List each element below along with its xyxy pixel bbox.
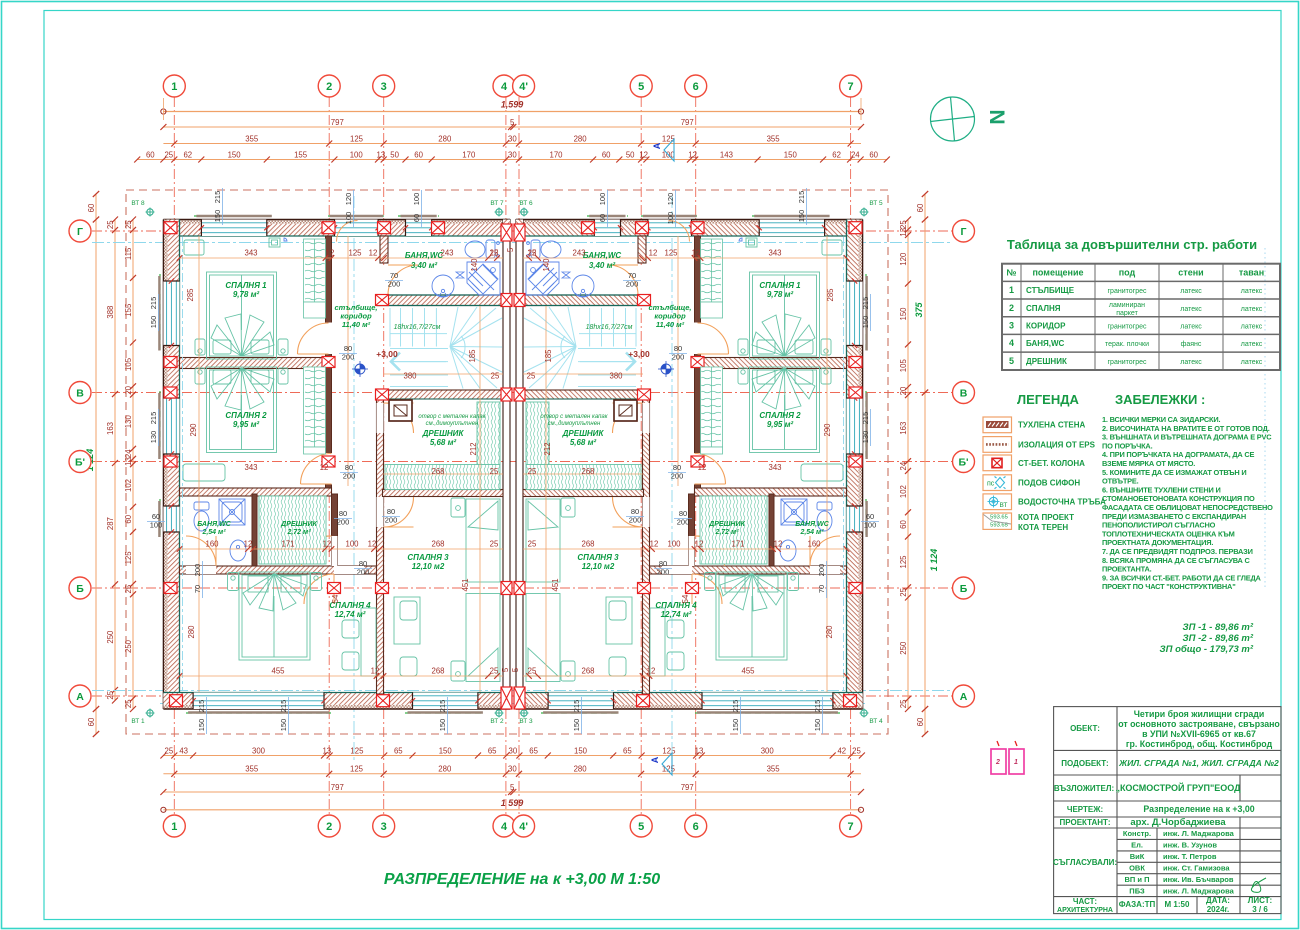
svg-text:280: 280 xyxy=(574,134,588,143)
svg-text:ПО ПОРЪЧКА.: ПО ПОРЪЧКА. xyxy=(1102,441,1153,450)
svg-text:„КОСМОСТРОЙ ГРУП"ЕООД: „КОСМОСТРОЙ ГРУП"ЕООД xyxy=(1115,782,1241,793)
svg-text:Б: Б xyxy=(960,583,968,595)
svg-text:12: 12 xyxy=(326,249,335,258)
svg-text:4': 4' xyxy=(519,81,528,93)
svg-text:ПРОЕКТАНТА.: ПРОЕКТАНТА. xyxy=(1102,565,1152,574)
svg-text:25: 25 xyxy=(528,667,537,676)
svg-text:150: 150 xyxy=(438,719,447,732)
svg-text:150: 150 xyxy=(574,746,588,755)
svg-text:ВТ 5: ВТ 5 xyxy=(869,200,883,207)
svg-text:ВТ 1: ВТ 1 xyxy=(131,718,145,725)
svg-text:ОБЕКТ:: ОБЕКТ: xyxy=(1070,724,1100,733)
svg-text:60: 60 xyxy=(899,520,908,529)
svg-text:N: N xyxy=(987,109,1010,124)
svg-text:паркет: паркет xyxy=(1116,310,1138,317)
svg-text:отвор с метален капак: отвор с метален капак xyxy=(540,414,608,420)
svg-text:125: 125 xyxy=(664,249,678,258)
svg-text:13: 13 xyxy=(695,746,704,755)
svg-text:25: 25 xyxy=(106,220,115,229)
svg-text:ПБЗ: ПБЗ xyxy=(1129,886,1145,895)
svg-text:171: 171 xyxy=(731,540,744,549)
svg-text:ПОДОВ СИФОН: ПОДОВ СИФОН xyxy=(1018,479,1080,488)
svg-text:помещение: помещение xyxy=(1032,268,1083,278)
svg-text:7. ДА СЕ ПРЕДВИДЯТ ПОДПРОЗ. ПЕ: 7. ДА СЕ ПРЕДВИДЯТ ПОДПРОЗ. ПЕРВАЗИ xyxy=(1102,547,1253,556)
svg-text:Б: Б xyxy=(76,583,84,595)
svg-text:20: 20 xyxy=(124,385,133,394)
svg-text:латекс: латекс xyxy=(1180,324,1202,331)
svg-text:268: 268 xyxy=(581,467,594,476)
svg-text:12,10 м2: 12,10 м2 xyxy=(412,562,445,571)
svg-text:5,68 м²: 5,68 м² xyxy=(570,438,597,447)
svg-text:65: 65 xyxy=(394,746,403,755)
svg-text:50: 50 xyxy=(390,150,399,159)
svg-text:КОТА ТЕРЕН: КОТА ТЕРЕН xyxy=(1018,523,1068,532)
svg-text:Ел.: Ел. xyxy=(1131,841,1143,850)
svg-text:7: 7 xyxy=(848,821,854,833)
svg-text:5: 5 xyxy=(506,247,515,252)
svg-text:9,95 м²: 9,95 м² xyxy=(767,420,794,429)
svg-text:ЗП общо - 179,73 m²: ЗП общо - 179,73 m² xyxy=(1160,644,1254,655)
svg-text:343: 343 xyxy=(768,463,781,472)
svg-text:СТЪЛБИЩЕ: СТЪЛБИЩЕ xyxy=(1026,286,1075,295)
svg-text:12,74 м²: 12,74 м² xyxy=(335,610,366,619)
svg-text:ВиК: ВиК xyxy=(1130,852,1145,861)
svg-text:12: 12 xyxy=(639,150,648,159)
svg-text:13: 13 xyxy=(124,457,133,466)
svg-text:6: 6 xyxy=(693,81,699,93)
svg-text:150: 150 xyxy=(572,719,581,732)
svg-text:ДРЕШНИК: ДРЕШНИК xyxy=(708,521,745,528)
svg-text:ПОДОБЕКТ:: ПОДОБЕКТ: xyxy=(1061,759,1108,768)
svg-text:12: 12 xyxy=(688,150,697,159)
svg-text:ОВК: ОВК xyxy=(1129,864,1145,873)
svg-text:терак. плочки: терак. плочки xyxy=(1105,341,1149,348)
svg-text:300: 300 xyxy=(252,746,266,755)
svg-text:155: 155 xyxy=(294,150,308,159)
svg-text:215: 215 xyxy=(861,412,870,425)
svg-text:355: 355 xyxy=(767,134,781,143)
svg-text:215: 215 xyxy=(279,700,288,713)
svg-text:Четири броя жилищни сгради: Четири броя жилищни сгради xyxy=(1134,709,1265,719)
svg-text:150: 150 xyxy=(813,719,822,732)
svg-text:ЗАБЕЛЕЖКИ :: ЗАБЕЛЕЖКИ : xyxy=(1115,392,1205,407)
svg-text:ВТ 6: ВТ 6 xyxy=(519,200,533,207)
svg-text:фаянс: фаянс xyxy=(1181,341,1202,348)
svg-text:стени: стени xyxy=(1178,268,1203,278)
svg-text:150: 150 xyxy=(197,719,206,732)
svg-text:25: 25 xyxy=(124,220,133,229)
svg-text:ТОПЛОТЕХНИЧЕСКАТА ОЦЕНКА КЪМ: ТОПЛОТЕХНИЧЕСКАТА ОЦЕНКА КЪМ xyxy=(1102,529,1235,538)
svg-text:инж. Ст. Гамизова: инж. Ст. Гамизова xyxy=(1163,864,1230,873)
svg-text:2,72 м²: 2,72 м² xyxy=(286,529,311,536)
svg-text:АРХИТЕКТУРНА: АРХИТЕКТУРНА xyxy=(1057,907,1113,914)
svg-text:БАНЯ,WC: БАНЯ,WC xyxy=(197,521,231,528)
svg-text:12: 12 xyxy=(368,540,377,549)
svg-text:120: 120 xyxy=(344,193,353,206)
svg-text:СЪГЛАСУВАЛИ:: СЪГЛАСУВАЛИ: xyxy=(1053,858,1117,867)
svg-text:42: 42 xyxy=(837,746,846,755)
svg-text:285: 285 xyxy=(186,288,195,302)
svg-text:290: 290 xyxy=(189,423,198,437)
svg-text:150: 150 xyxy=(149,316,158,329)
svg-text:ПРОЕКТ ПО ЧАСТ "КОНСТРУКТИВНА": ПРОЕКТ ПО ЧАСТ "КОНСТРУКТИВНА" xyxy=(1102,582,1236,591)
svg-text:25: 25 xyxy=(124,699,133,708)
svg-text:ДРЕШНИК: ДРЕШНИК xyxy=(562,429,605,438)
svg-text:+3,00: +3,00 xyxy=(376,349,398,359)
svg-text:100: 100 xyxy=(345,540,359,549)
svg-text:2: 2 xyxy=(326,821,332,833)
svg-text:КОТА ПРОЕКТ: КОТА ПРОЕКТ xyxy=(1018,513,1074,522)
svg-text:25: 25 xyxy=(490,540,499,549)
svg-text:60: 60 xyxy=(598,214,607,222)
svg-text:120: 120 xyxy=(666,193,675,206)
svg-text:380: 380 xyxy=(609,372,623,381)
svg-text:60: 60 xyxy=(414,150,423,159)
svg-text:3. ВЪНШНАТА И ВЪТРЕШНАТА ДОГРА: 3. ВЪНШНАТА И ВЪТРЕШНАТА ДОГРАМА Е PVC xyxy=(1102,433,1272,442)
svg-text:60: 60 xyxy=(87,717,96,726)
svg-text:4: 4 xyxy=(501,821,508,833)
svg-text:9. ЗА ВСИЧКИ СТ.-БЕТ. РАБОТИ Д: 9. ЗА ВСИЧКИ СТ.-БЕТ. РАБОТИ ДА СЕ ГЛЕДА xyxy=(1102,573,1262,582)
svg-text:2. ВИСОЧИНАТА НА ВРАТИТЕ Е ОТ: 2. ВИСОЧИНАТА НА ВРАТИТЕ Е ОТ ГОТОВ ПОД. xyxy=(1102,424,1270,433)
svg-text:25: 25 xyxy=(165,746,174,755)
svg-text:62: 62 xyxy=(183,150,192,159)
svg-text:см.,димоуплътнен: см.,димоуплътнен xyxy=(548,421,601,427)
svg-text:150: 150 xyxy=(213,210,222,223)
svg-text:12: 12 xyxy=(244,540,253,549)
svg-text:215: 215 xyxy=(731,700,740,713)
svg-text:СПАЛНЯ: СПАЛНЯ xyxy=(1026,304,1061,313)
svg-text:25: 25 xyxy=(491,372,500,381)
svg-text:797: 797 xyxy=(681,783,694,792)
svg-text:СПАЛНЯ 1: СПАЛНЯ 1 xyxy=(759,281,801,290)
svg-text:140: 140 xyxy=(542,258,551,272)
svg-text:212: 212 xyxy=(543,442,552,455)
svg-text:24: 24 xyxy=(899,461,908,470)
svg-text:гранитогрес: гранитогрес xyxy=(1108,359,1147,366)
svg-text:30: 30 xyxy=(508,134,517,143)
svg-text:243: 243 xyxy=(572,249,585,258)
svg-text:1: 1 xyxy=(1014,759,1018,766)
svg-text:инж. Ив. Бъчваров: инж. Ив. Бъчваров xyxy=(1163,875,1234,884)
svg-text:125: 125 xyxy=(662,746,676,755)
svg-text:5: 5 xyxy=(510,783,515,792)
svg-text:212: 212 xyxy=(469,442,478,455)
svg-text:2: 2 xyxy=(995,759,1000,766)
svg-text:12: 12 xyxy=(649,249,658,258)
svg-text:287: 287 xyxy=(106,517,115,530)
svg-text:250: 250 xyxy=(106,630,115,644)
svg-text:12: 12 xyxy=(698,463,707,472)
svg-text:24: 24 xyxy=(124,449,133,458)
svg-text:+3,00: +3,00 xyxy=(628,349,650,359)
svg-text:гр. Костинброд, общ. Костинбро: гр. Костинброд, общ. Костинброд xyxy=(1126,739,1273,749)
svg-text:343: 343 xyxy=(244,463,257,472)
svg-text:380: 380 xyxy=(403,372,417,381)
svg-text:М 1:50: М 1:50 xyxy=(1165,900,1190,909)
svg-text:КОРИДОР: КОРИДОР xyxy=(1026,322,1066,331)
svg-text:12: 12 xyxy=(695,540,704,549)
svg-text:150: 150 xyxy=(731,719,740,732)
svg-text:4. ПРИ ПОРЪЧКАТА НА ДОГРАМАТА,: 4. ПРИ ПОРЪЧКАТА НА ДОГРАМАТА, ДА СЕ xyxy=(1102,450,1255,459)
svg-text:СПАЛНЯ 2: СПАЛНЯ 2 xyxy=(225,411,267,420)
svg-text:243: 243 xyxy=(440,249,453,258)
svg-text:ВТ 7: ВТ 7 xyxy=(490,200,504,207)
svg-text:ОТВЪТРЕ.: ОТВЪТРЕ. xyxy=(1102,477,1139,486)
svg-text:1: 1 xyxy=(171,821,177,833)
svg-text:11,40 м²: 11,40 м² xyxy=(342,320,371,329)
svg-text:ПЕНОПОЛИСТИРОЛ СЪГЛАСНО: ПЕНОПОЛИСТИРОЛ СЪГЛАСНО xyxy=(1102,521,1216,530)
svg-text:В: В xyxy=(960,388,968,400)
svg-text:130: 130 xyxy=(861,431,870,444)
svg-text:латекс: латекс xyxy=(1241,288,1263,295)
svg-text:ВОДОСТОЧНА ТРЪБА: ВОДОСТОЧНА ТРЪБА xyxy=(1018,498,1106,507)
svg-text:латекс: латекс xyxy=(1180,306,1202,313)
svg-text:инж. Л. Маджарова: инж. Л. Маджарова xyxy=(1163,829,1235,838)
svg-text:70: 70 xyxy=(817,585,826,593)
svg-text:455: 455 xyxy=(271,667,285,676)
svg-text:285: 285 xyxy=(826,288,835,302)
svg-text:12: 12 xyxy=(320,463,329,472)
svg-text:12: 12 xyxy=(323,540,332,549)
svg-text:ВЗЕМЕ МЯРКА ОТ МЯСТО.: ВЗЕМЕ МЯРКА ОТ МЯСТО. xyxy=(1102,459,1195,468)
svg-text:43: 43 xyxy=(179,746,188,755)
svg-text:105: 105 xyxy=(899,359,908,373)
svg-text:ЗП -2 - 89,86 m²: ЗП -2 - 89,86 m² xyxy=(1183,633,1254,644)
svg-text:25: 25 xyxy=(899,587,908,596)
svg-text:100: 100 xyxy=(598,193,607,206)
svg-text:12,74 м²: 12,74 м² xyxy=(661,610,692,619)
svg-text:25: 25 xyxy=(490,667,499,676)
svg-text:5: 5 xyxy=(501,667,510,672)
svg-text:9,78 м²: 9,78 м² xyxy=(233,290,260,299)
svg-text:25: 25 xyxy=(852,746,861,755)
svg-text:ламиниран: ламиниран xyxy=(1109,302,1145,309)
svg-text:70: 70 xyxy=(193,585,202,593)
svg-text:12: 12 xyxy=(774,540,783,549)
svg-text:355: 355 xyxy=(767,765,781,774)
svg-text:105: 105 xyxy=(124,357,133,371)
svg-text:290: 290 xyxy=(823,423,832,437)
svg-text:200: 200 xyxy=(817,564,826,577)
svg-text:25: 25 xyxy=(528,540,537,549)
svg-text:ДРЕШНИК: ДРЕШНИК xyxy=(422,429,465,438)
svg-text:451: 451 xyxy=(551,578,560,591)
svg-text:50: 50 xyxy=(626,150,635,159)
svg-text:5: 5 xyxy=(511,667,520,672)
svg-text:100: 100 xyxy=(412,193,421,206)
svg-text:797: 797 xyxy=(331,783,344,792)
svg-text:11,40 м²: 11,40 м² xyxy=(656,320,685,329)
svg-text:150: 150 xyxy=(899,307,908,321)
svg-text:Констр.: Констр. xyxy=(1123,829,1151,838)
svg-text:797: 797 xyxy=(681,118,694,127)
svg-text:отвор с метален капак: отвор с метален капак xyxy=(418,414,486,420)
svg-text:ВТ: ВТ xyxy=(1000,502,1008,509)
svg-text:СПАЛНЯ 2: СПАЛНЯ 2 xyxy=(759,411,801,420)
svg-text:125: 125 xyxy=(124,551,133,565)
svg-text:25: 25 xyxy=(528,467,537,476)
svg-text:130: 130 xyxy=(124,415,133,429)
svg-text:268: 268 xyxy=(431,667,444,676)
svg-text:ВП и П: ВП и П xyxy=(1125,875,1150,884)
svg-text:102: 102 xyxy=(899,485,908,498)
svg-text:268: 268 xyxy=(431,467,444,476)
svg-text:ВТ 3: ВТ 3 xyxy=(519,718,533,725)
svg-text:латекс: латекс xyxy=(1241,324,1263,331)
svg-text:60: 60 xyxy=(87,203,96,212)
svg-text:25: 25 xyxy=(490,249,499,258)
svg-text:2024г.: 2024г. xyxy=(1207,905,1230,914)
svg-text:250: 250 xyxy=(899,641,908,655)
svg-text:65: 65 xyxy=(488,746,497,755)
svg-text:ПРОЕКТАНТ:: ПРОЕКТАНТ: xyxy=(1059,818,1110,827)
svg-text:ЛЕГЕНДА: ЛЕГЕНДА xyxy=(1017,392,1079,407)
svg-text:160: 160 xyxy=(807,540,821,549)
svg-text:25: 25 xyxy=(124,584,133,593)
svg-text:латекс: латекс xyxy=(1241,359,1263,366)
svg-text:1. ВСИЧКИ МЕРКИ СА ЗИДАРСКИ.: 1. ВСИЧКИ МЕРКИ СА ЗИДАРСКИ. xyxy=(1102,415,1220,424)
svg-text:1 124: 1 124 xyxy=(929,549,939,572)
svg-text:Б': Б' xyxy=(958,457,968,469)
svg-text:5: 5 xyxy=(638,81,644,93)
svg-text:200: 200 xyxy=(193,564,202,577)
svg-text:12: 12 xyxy=(647,667,656,676)
svg-text:СТОМАНОБЕТОНОВАТА КОНСТРУКЦИЯ: СТОМАНОБЕТОНОВАТА КОНСТРУКЦИЯ ПО xyxy=(1102,494,1255,503)
svg-text:2,54 м²: 2,54 м² xyxy=(201,529,226,536)
svg-text:ВЪЗЛОЖИТЕЛ:: ВЪЗЛОЖИТЕЛ: xyxy=(1054,784,1114,793)
svg-text:30: 30 xyxy=(508,150,517,159)
svg-text:ЖИЛ. СГРАДА №1, ЖИЛ. СГРАДА №2: ЖИЛ. СГРАДА №1, ЖИЛ. СГРАДА №2 xyxy=(1118,758,1279,768)
svg-text:300: 300 xyxy=(761,746,775,755)
svg-text:30: 30 xyxy=(508,765,517,774)
svg-text:3,40 м²: 3,40 м² xyxy=(589,261,616,270)
svg-text:ЧАСТ:: ЧАСТ: xyxy=(1073,897,1097,906)
svg-text:№: № xyxy=(1006,268,1016,278)
svg-text:125: 125 xyxy=(899,555,908,569)
svg-text:см.,димоуплътнен: см.,димоуплътнен xyxy=(426,421,479,427)
svg-text:60: 60 xyxy=(916,203,925,212)
svg-text:120: 120 xyxy=(899,252,908,266)
svg-text:Таблица за довършителни стр. р: Таблица за довършителни стр. работи xyxy=(1007,237,1257,252)
svg-text:102: 102 xyxy=(124,479,133,492)
svg-text:150: 150 xyxy=(784,150,798,159)
svg-text:Разпределение на к +3,00: Разпределение на к +3,00 xyxy=(1143,804,1254,814)
svg-text:3: 3 xyxy=(381,81,387,93)
svg-text:гранитогрес: гранитогрес xyxy=(1108,324,1147,331)
svg-text:ТУХЛЕНА СТЕНА: ТУХЛЕНА СТЕНА xyxy=(1018,421,1086,430)
svg-text:латекс: латекс xyxy=(1180,359,1202,366)
svg-text:12: 12 xyxy=(692,249,701,258)
svg-text:ПРЕДИ ИЗМАЗВАНЕТО С ЕКСПАНДИРА: ПРЕДИ ИЗМАЗВАНЕТО С ЕКСПАНДИРАН xyxy=(1102,512,1246,521)
svg-text:12: 12 xyxy=(371,667,380,676)
svg-text:215: 215 xyxy=(438,700,447,713)
svg-text:ВТ 2: ВТ 2 xyxy=(490,718,504,725)
svg-text:130: 130 xyxy=(149,431,158,444)
svg-text:280: 280 xyxy=(438,765,452,774)
svg-text:Г: Г xyxy=(961,226,967,238)
svg-text:ВТ 4: ВТ 4 xyxy=(869,718,883,725)
svg-text:арх. Д.Чорбаджиева: арх. Д.Чорбаджиева xyxy=(1130,817,1226,828)
svg-text:280: 280 xyxy=(574,765,588,774)
svg-text:5: 5 xyxy=(510,118,515,127)
svg-text:280: 280 xyxy=(187,625,196,639)
svg-text:ВТ 8: ВТ 8 xyxy=(131,200,145,207)
svg-text:ЛИСТ:: ЛИСТ: xyxy=(1248,896,1272,905)
svg-text:таван: таван xyxy=(1239,268,1264,278)
svg-text:ФАСАДАТА СЕ ОБЛИЦОВАТ НЕПОСРЕД: ФАСАДАТА СЕ ОБЛИЦОВАТ НЕПОСРЕДСТВЕНО xyxy=(1102,503,1273,512)
svg-text:Б': Б' xyxy=(75,457,85,469)
svg-text:215: 215 xyxy=(813,700,822,713)
svg-text:под: под xyxy=(1119,268,1136,278)
svg-text:163: 163 xyxy=(106,422,115,435)
svg-text:ЧЕРТЕЖ:: ЧЕРТЕЖ: xyxy=(1067,805,1103,814)
svg-text:65: 65 xyxy=(623,746,632,755)
svg-text:инж. Л. Маджарова: инж. Л. Маджарова xyxy=(1163,886,1235,895)
svg-text:250: 250 xyxy=(124,639,133,653)
svg-text:А: А xyxy=(960,691,968,703)
svg-text:280: 280 xyxy=(438,134,452,143)
svg-text:125: 125 xyxy=(350,134,364,143)
svg-text:150: 150 xyxy=(797,210,806,223)
svg-text:125: 125 xyxy=(350,746,364,755)
svg-text:100: 100 xyxy=(350,150,364,159)
svg-text:100: 100 xyxy=(666,212,675,225)
svg-text:150: 150 xyxy=(228,150,242,159)
svg-text:2,54 м²: 2,54 м² xyxy=(799,529,824,536)
svg-text:62: 62 xyxy=(832,150,841,159)
svg-text:155: 155 xyxy=(124,303,133,317)
svg-text:А: А xyxy=(652,142,662,149)
svg-text:451: 451 xyxy=(461,578,470,591)
svg-text:2: 2 xyxy=(1009,303,1014,313)
svg-text:5,68 м²: 5,68 м² xyxy=(430,438,457,447)
svg-text:25: 25 xyxy=(899,220,908,229)
svg-text:60: 60 xyxy=(146,150,155,159)
svg-text:ФАЗА:ТП: ФАЗА:ТП xyxy=(1119,900,1156,909)
svg-text:13: 13 xyxy=(377,150,386,159)
svg-text:9,95 м²: 9,95 м² xyxy=(233,420,260,429)
svg-text:25: 25 xyxy=(164,150,173,159)
svg-text:СПАЛНЯ 3: СПАЛНЯ 3 xyxy=(577,553,619,562)
svg-text:100: 100 xyxy=(667,540,681,549)
svg-text:215: 215 xyxy=(149,297,158,310)
svg-text:5. КОМИНИТЕ ДА СЕ ИЗМАЖАТ ОТВЪ: 5. КОМИНИТЕ ДА СЕ ИЗМАЖАТ ОТВЪН И xyxy=(1102,468,1246,477)
svg-text:СПАЛНЯ 3: СПАЛНЯ 3 xyxy=(407,553,449,562)
svg-text:343: 343 xyxy=(244,249,257,258)
svg-text:170: 170 xyxy=(549,150,563,159)
svg-text:БАНЯ,WC: БАНЯ,WC xyxy=(405,251,444,260)
svg-text:3,40 м²: 3,40 м² xyxy=(411,261,438,270)
svg-text:60: 60 xyxy=(412,214,421,222)
svg-text:латекс: латекс xyxy=(1241,306,1263,313)
svg-text:355: 355 xyxy=(245,134,259,143)
svg-text:54: 54 xyxy=(331,594,340,603)
svg-text:215: 215 xyxy=(572,700,581,713)
svg-text:латекс: латекс xyxy=(1180,288,1202,295)
svg-text:150: 150 xyxy=(861,316,870,329)
svg-text:4: 4 xyxy=(501,81,508,93)
svg-text:В: В xyxy=(76,388,84,400)
svg-text:20: 20 xyxy=(899,386,908,395)
svg-text:СПАЛНЯ 4: СПАЛНЯ 4 xyxy=(655,601,697,610)
svg-text:9,78 м²: 9,78 м² xyxy=(767,290,794,299)
svg-text:1 599: 1 599 xyxy=(501,798,524,808)
svg-text:12: 12 xyxy=(650,540,659,549)
svg-text:4: 4 xyxy=(1009,338,1014,348)
svg-text:ДРЕШНИК: ДРЕШНИК xyxy=(280,521,317,528)
svg-text:343: 343 xyxy=(768,249,781,258)
svg-text:4': 4' xyxy=(519,821,528,833)
